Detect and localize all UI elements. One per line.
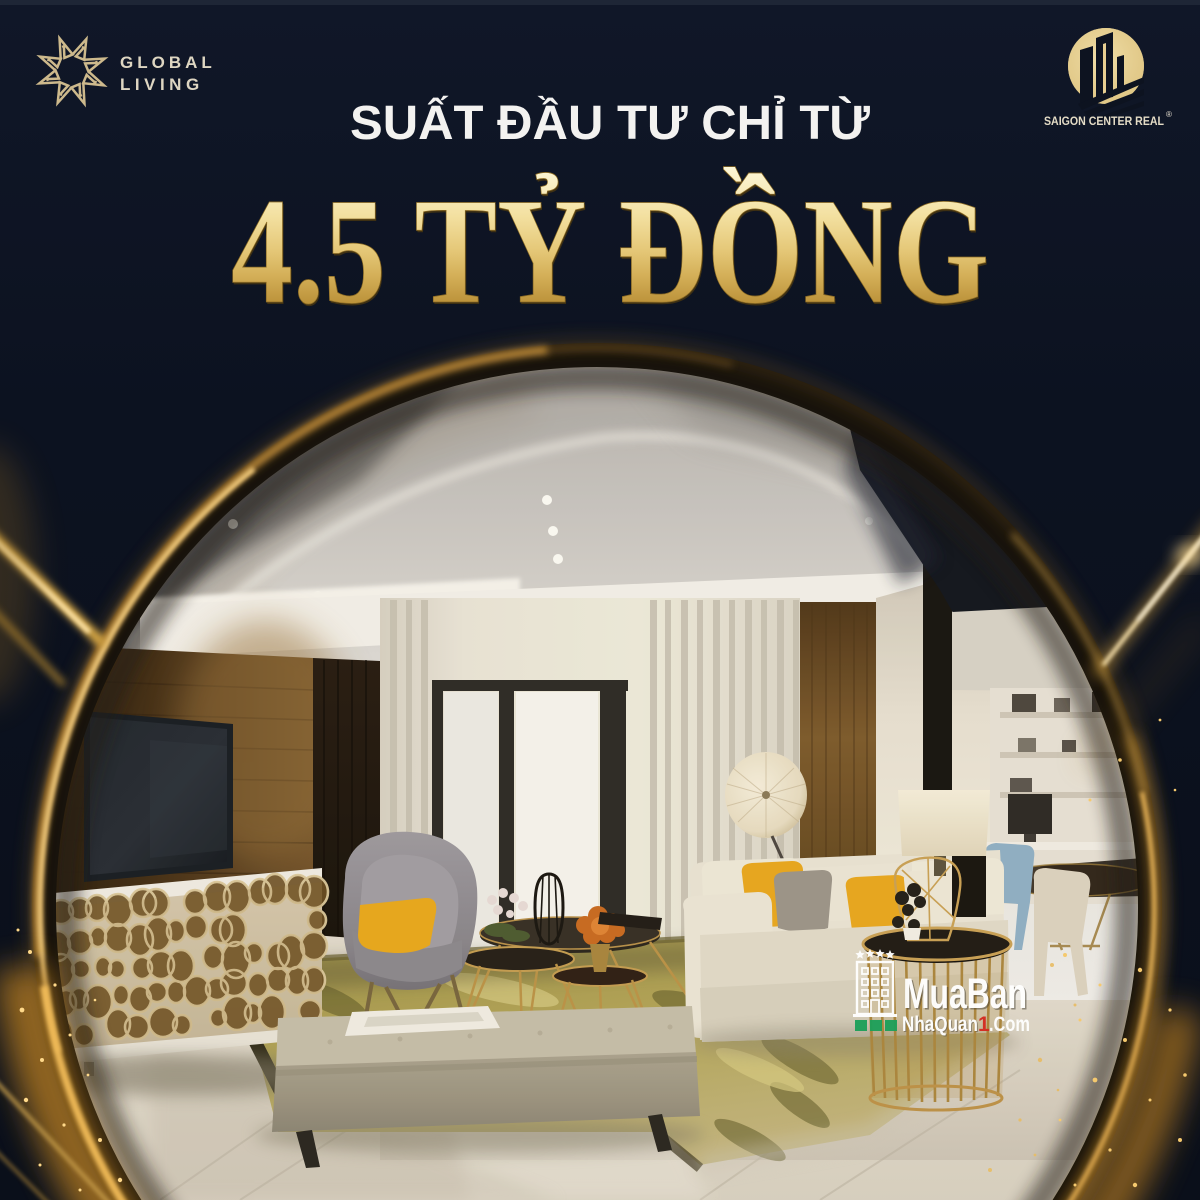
svg-text:4.5 TỶ ĐỒNG: 4.5 TỶ ĐỒNG	[231, 165, 989, 335]
svg-text:®: ®	[1166, 110, 1172, 119]
svg-text:LIVING: LIVING	[120, 75, 204, 94]
svg-text:SAIGON CENTER REAL: SAIGON CENTER REAL	[1044, 116, 1164, 128]
svg-text:SUẤT ĐẦU TƯ CHỈ TỪ: SUẤT ĐẦU TƯ CHỈ TỪ	[350, 95, 870, 150]
svg-text:MuaBan: MuaBan	[903, 970, 1027, 1018]
svg-text:.Com: .Com	[989, 1013, 1030, 1036]
svg-text:GLOBAL: GLOBAL	[120, 53, 216, 72]
svg-text:NhaQuan: NhaQuan	[902, 1013, 978, 1036]
